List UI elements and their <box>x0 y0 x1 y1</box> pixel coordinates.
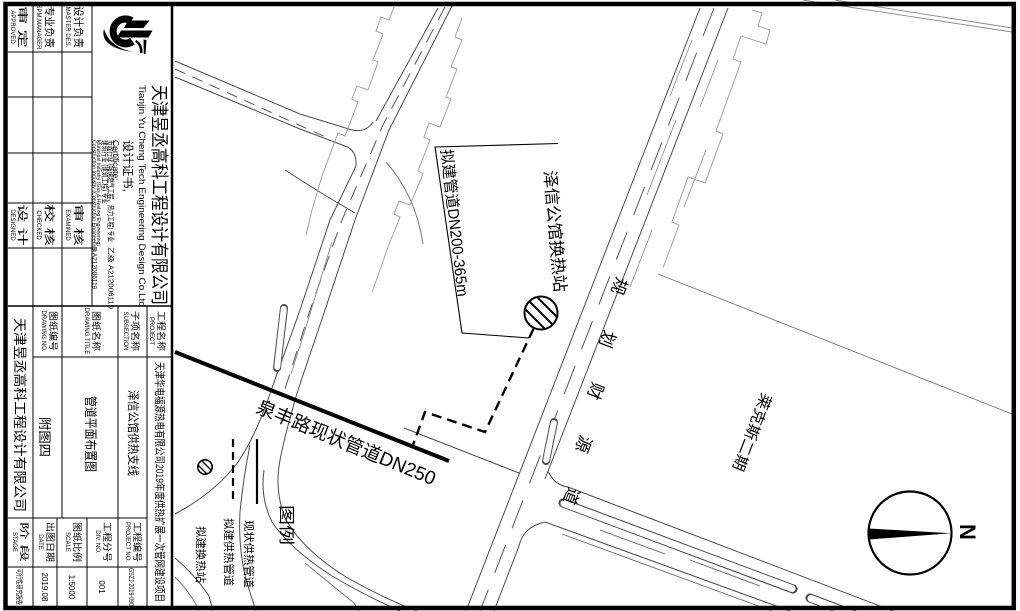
svg-text:拟建换热站: 拟建换热站 <box>194 526 208 583</box>
svg-text:1:5000: 1:5000 <box>67 575 76 600</box>
svg-text:设计证书,: 设计证书, <box>121 140 134 192</box>
svg-text:图纸名称: 图纸名称 <box>91 311 102 351</box>
svg-text:CHECKED: CHECKED <box>35 210 41 240</box>
svg-text:天津昱丞高科工程设计有限公司: 天津昱丞高科工程设计有限公司 <box>12 318 28 512</box>
svg-text:拟建供热管道: 拟建供热管道 <box>222 518 236 586</box>
svg-text:设计负责: 设计负责 <box>72 6 85 48</box>
svg-text:规: 规 <box>607 275 631 298</box>
svg-text:PROJECT: PROJECT <box>148 317 154 345</box>
svg-text:财: 财 <box>583 380 607 403</box>
svg-text:Tianjin Yu Cheng Tech Enginee: Tianjin Yu Cheng Tech Engineering Design… <box>136 85 147 307</box>
svg-text:工程编号: 工程编号 <box>132 522 143 562</box>
svg-text:图纸编号: 图纸编号 <box>48 311 59 351</box>
svg-text:阶 段: 阶 段 <box>19 522 30 562</box>
svg-text:STAGE: STAGE <box>11 532 17 552</box>
svg-text:001: 001 <box>97 580 106 594</box>
svg-text:2019.08: 2019.08 <box>40 573 49 602</box>
svg-text:N: N <box>955 524 980 540</box>
svg-text:可行性研究报告: 可行性研究报告 <box>15 569 24 605</box>
svg-text:工程分号: 工程分号 <box>102 522 112 562</box>
svg-text:MASTER DES.: MASTER DES. <box>64 7 70 48</box>
svg-text:乙级 A212006119: 乙级 A212006119 <box>107 247 116 309</box>
svg-text:专业负责: 专业负责 <box>43 6 56 48</box>
svg-text:泉丰路现状管道DN250: 泉丰路现状管道DN250 <box>253 396 439 490</box>
svg-text:DIV. NO.: DIV. NO. <box>94 530 100 554</box>
svg-text:审 核: 审 核 <box>72 204 85 247</box>
svg-text:审 定: 审 定 <box>16 6 29 49</box>
svg-text:子项名称: 子项名称 <box>130 311 141 351</box>
svg-text:工程名称: 工程名称 <box>156 311 167 351</box>
svg-text:DRAWING NO.: DRAWING NO. <box>40 310 46 351</box>
svg-text:APPROVED: APPROVED <box>9 10 15 44</box>
svg-text:EXAMINED: EXAMINED <box>64 209 70 241</box>
svg-text:DATE: DATE <box>37 534 43 550</box>
svg-text:源: 源 <box>571 433 595 456</box>
svg-text:SCALE: SCALE <box>64 532 70 552</box>
svg-text:现状供热管道: 现状供热管道 <box>242 520 256 588</box>
svg-text:天津华电福源热电有限公司2019年度供热扩展一次管网建设项目: 天津华电福源热电有限公司2019年度供热扩展一次管网建设项目 <box>153 362 167 602</box>
svg-text:SUBSECTION: SUBSECTION <box>122 311 128 350</box>
svg-text:出图日期: 出图日期 <box>45 522 56 562</box>
svg-text:GSZJ-2019-090: GSZJ-2019-090 <box>127 568 136 606</box>
svg-text:泽信公馆供热支线: 泽信公馆供热支线 <box>126 390 141 476</box>
svg-text:附图四: 附图四 <box>37 417 52 457</box>
svg-text:DRAWING TITLE: DRAWING TITLE <box>83 308 89 355</box>
svg-text:图例: 图例 <box>277 505 295 545</box>
svg-text:校 核: 校 核 <box>43 204 56 247</box>
svg-text:DESIGNED: DESIGNED <box>9 209 15 241</box>
svg-text:管道平面布置图: 管道平面布置图 <box>83 396 98 472</box>
svg-text:Construction Industry (Constru: Construction Industry (Construction Engi… <box>91 140 97 252</box>
svg-text:设 计: 设 计 <box>16 204 29 247</box>
svg-text:PROJECT NO.: PROJECT NO. <box>124 522 130 563</box>
svg-text:莱克斯二期: 莱克斯二期 <box>729 391 774 474</box>
svg-text:SPM.MANAGER: SPM.MANAGER <box>35 4 41 50</box>
svg-text:B A212006119: B A212006119 <box>91 247 98 290</box>
svg-text:图纸比例: 图纸比例 <box>72 522 83 562</box>
svg-text:泽信公馆换热站: 泽信公馆换热站 <box>540 170 570 293</box>
svg-text:天津昱丞高科工程设计有限公司: 天津昱丞高科工程设计有限公司 <box>149 85 169 305</box>
svg-text:划: 划 <box>595 328 619 351</box>
svg-text:拟建管道DN200-365m: 拟建管道DN200-365m <box>437 148 472 297</box>
